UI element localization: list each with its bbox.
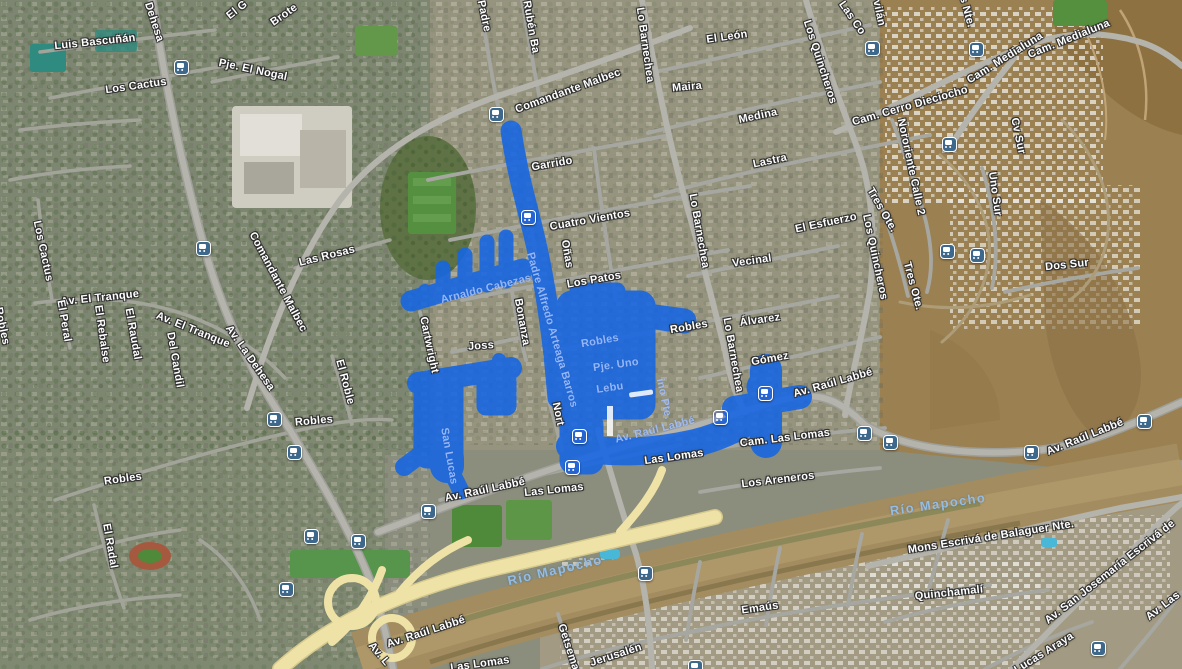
street-label: Las Lomas [644,447,705,467]
street-label: Nort [550,401,567,427]
street-label: Lo Barnechea [687,193,712,270]
street-label: Garrido [531,154,574,173]
transit-stop-icon[interactable] [940,244,955,259]
street-label: Luis Bascuñán [54,32,136,52]
transit-stop-icon[interactable] [174,60,189,75]
street-label: El Esfuerzo [794,211,858,236]
street-label: Cam. Las Lomas [739,427,831,450]
transit-stop-icon[interactable] [196,241,211,256]
street-label: Robles [0,306,12,346]
transit-stop-icon[interactable] [489,107,504,122]
street-label: vilán [870,0,887,27]
transit-stop-icon[interactable] [713,410,728,425]
transit-stop-icon[interactable] [969,42,984,57]
transit-stop-icon[interactable] [279,582,294,597]
water-label: Río Mapocho [506,552,604,588]
street-label: Robles [294,413,333,428]
street-label: Mons Escrivá de Balaguer Nte. [907,518,1075,556]
street-label: Las Lomas [524,481,585,499]
street-label: Las Rosas [298,243,356,269]
street-label: Cuatro Vientos [549,207,631,233]
street-label: Oñas [559,239,576,269]
street-label: Lo Barnechea [634,7,656,84]
street-label: Uno Sur [986,171,1004,217]
transit-stop-icon[interactable] [1091,641,1106,656]
street-label: Av. La Dehesa [223,323,277,393]
street-label: Av. Raúl Labbé [1045,416,1125,458]
street-label: Quinchamalí [914,583,984,602]
street-label: El Roble [333,358,357,406]
overlay-street-label: ino Pte. [654,377,674,420]
street-label: Comandante Malbec [247,230,310,334]
street-label: Las Co [836,0,868,37]
street-label: El León [706,28,749,46]
transit-stop-icon[interactable] [304,529,319,544]
street-label: Los Areneros [741,470,815,491]
street-label: Av. Las [1144,589,1182,623]
overlay-street-label: Lebu [596,380,625,396]
overlay-street-label: San Lucas [438,427,460,485]
street-label: s Nte. [957,0,977,29]
overlay-street-label: Pje. Uno [592,356,639,374]
label-layer: Luis BascuñánLos CactusPje. El NogalDehe… [0,0,1182,669]
street-label: Pje. El Nogal [218,57,289,83]
street-label: Tres Ote. [901,261,925,312]
street-label: Av. Raúl Labbé [385,614,466,651]
street-label: Álvarez [739,311,781,329]
street-label: Gómez [750,350,789,368]
transit-stop-icon[interactable] [970,248,985,263]
transit-stop-icon[interactable] [883,435,898,450]
street-label: Av. Raúl Labbé [792,366,874,400]
street-label: Los Cactus [31,220,56,283]
street-label: Los Quincheros [801,19,839,106]
street-label: Los Patos [566,269,622,290]
street-label: El Raudal [123,307,144,361]
transit-stop-icon[interactable] [688,660,703,669]
transit-stop-icon[interactable] [942,137,957,152]
street-label: Lastra [752,152,788,171]
street-label: Robles [103,470,142,487]
street-label: Dehesa [142,1,166,43]
transit-stop-icon[interactable] [267,412,282,427]
street-label: Vecinal [732,252,773,269]
street-label: El Rebalse [92,304,112,363]
street-label: Lucas Araya [1012,630,1076,669]
street-label: Robles [669,318,709,336]
street-label: El G [224,0,250,22]
street-label: Jerusalén [589,641,644,669]
transit-stop-icon[interactable] [572,429,587,444]
overlay-street-label: Robles [580,332,620,350]
street-label: Dos Sur [1045,257,1090,274]
transit-stop-icon[interactable] [421,504,436,519]
water-label: Río Mapocho [889,490,987,518]
transit-stop-icon[interactable] [565,460,580,475]
street-label: Cv Sur [1008,117,1027,156]
street-label: Bonanza [512,298,532,347]
street-label: Brote [268,1,299,28]
transit-stop-icon[interactable] [857,426,872,441]
street-label: Cartwright [417,316,441,375]
street-label: Maira [672,80,703,95]
transit-stop-icon[interactable] [1137,414,1152,429]
street-label: Del Candil [164,331,186,389]
street-label: Getsemaní [555,622,584,669]
overlay-street-label: Av. Raúl Labbé [614,414,696,445]
street-label: El Radal [100,523,120,570]
street-label: Los Cactus [105,76,168,96]
street-label: Las Lomas [450,654,511,669]
street-label: Rubén Ba [520,0,541,54]
transit-stop-icon[interactable] [521,210,536,225]
transit-stop-icon[interactable] [865,41,880,56]
transit-stop-icon[interactable] [638,566,653,581]
transit-stop-icon[interactable] [758,386,773,401]
overlay-street-label: Padre Alfredo Arteaga Barros [524,251,580,409]
transit-stop-icon[interactable] [287,445,302,460]
street-label: Padre [475,0,493,33]
map-viewport[interactable]: Luis BascuñánLos CactusPje. El NogalDehe… [0,0,1182,669]
street-label: Medina [737,106,778,126]
street-label: Emaús [741,599,780,616]
transit-stop-icon[interactable] [1024,445,1039,460]
street-label: Nororiente Calle 2 [895,118,927,217]
street-label: Joss [468,339,495,353]
street-label: Comandante Malbec [514,66,623,115]
transit-stop-icon[interactable] [351,534,366,549]
street-label: Cam. Cerro Dieciocho [851,84,970,129]
